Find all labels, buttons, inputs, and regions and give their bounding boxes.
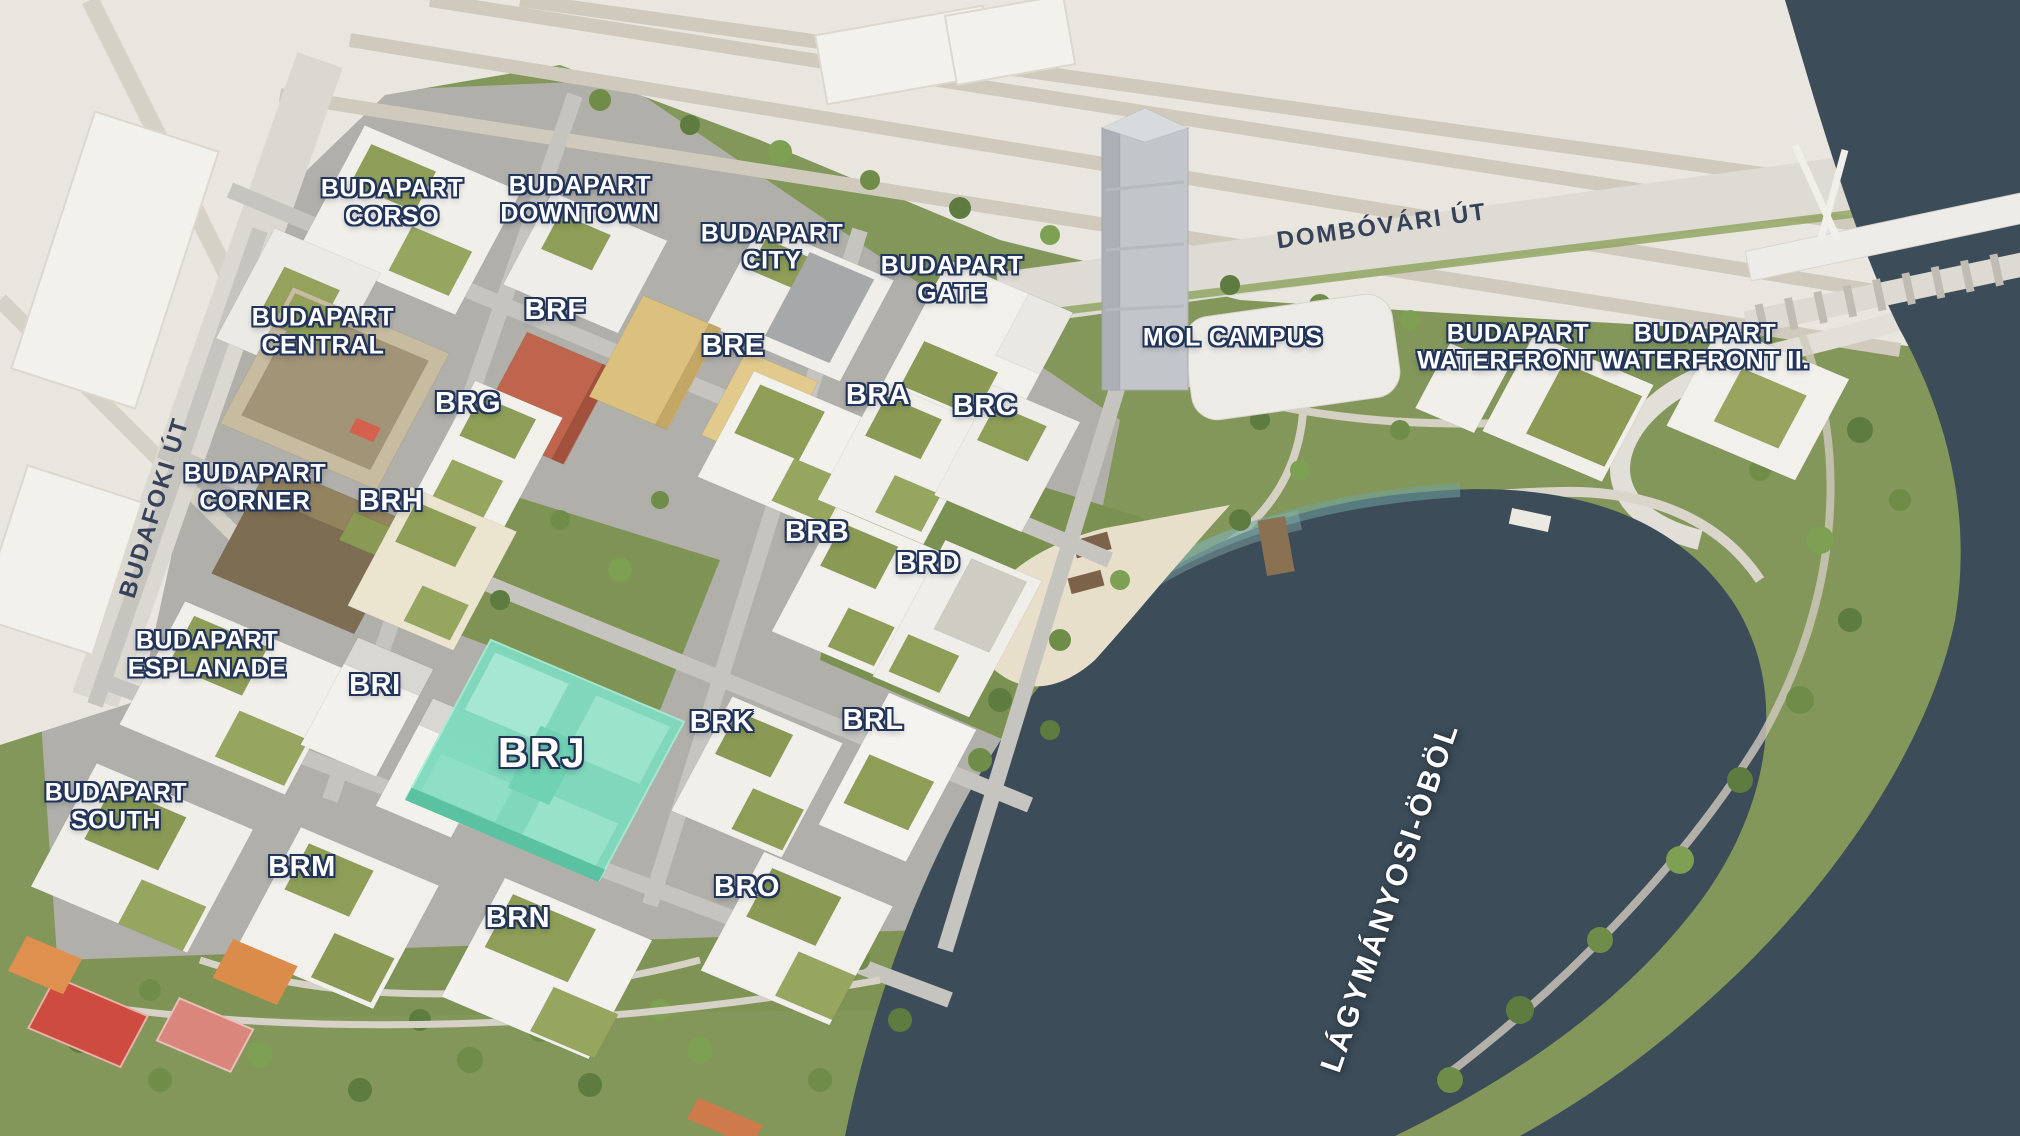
label-bri[interactable]: BRI — [349, 670, 400, 702]
label-budapart-waterfront-1[interactable]: BUDAPART WATERFRONT I. — [1417, 320, 1619, 375]
label-budapart-central[interactable]: BUDAPART CENTRAL — [252, 305, 394, 360]
label-brf[interactable]: BRF — [525, 295, 586, 327]
label-mol-campus[interactable]: MOL CAMPUS — [1143, 324, 1323, 352]
label-budapart-esplanade[interactable]: BUDAPART ESPLANADE — [128, 628, 287, 683]
label-brb[interactable]: BRB — [785, 517, 849, 549]
label-dombovari-ut: DOMBÓVÁRI ÚT — [1275, 199, 1489, 255]
label-budapart-downtown[interactable]: BUDAPART DOWNTOWN — [500, 173, 659, 228]
label-brj[interactable]: BRJ — [498, 730, 587, 776]
masterplan-map: BUDAPART CORSOBUDAPART DOWNTOWNBUDAPART … — [0, 0, 2020, 1136]
label-budapart-corso[interactable]: BUDAPART CORSO — [321, 176, 463, 231]
label-brn[interactable]: BRN — [486, 903, 550, 935]
label-brm[interactable]: BRM — [268, 852, 336, 884]
label-budapart-gate[interactable]: BUDAPART GATE — [881, 253, 1023, 308]
label-brc[interactable]: BRC — [953, 391, 1017, 423]
label-lagymanyosi-obol: LÁGYMÁNYOSI-ÖBÖL — [1314, 718, 1465, 1077]
label-brk[interactable]: BRK — [690, 707, 754, 739]
label-budapart-corner[interactable]: BUDAPART CORNER — [184, 461, 326, 516]
label-brg[interactable]: BRG — [435, 388, 501, 420]
label-brd[interactable]: BRD — [896, 548, 960, 580]
label-budapart-waterfront-2[interactable]: BUDAPART WATERFRONT II. — [1600, 320, 1809, 375]
label-bre[interactable]: BRE — [702, 331, 765, 363]
label-budapart-south[interactable]: BUDAPART SOUTH — [45, 780, 187, 835]
label-brl[interactable]: BRL — [842, 705, 903, 737]
label-budapart-city[interactable]: BUDAPART CITY — [701, 220, 843, 275]
label-brh[interactable]: BRH — [359, 486, 423, 518]
label-bra[interactable]: BRA — [846, 380, 910, 412]
map-labels: BUDAPART CORSOBUDAPART DOWNTOWNBUDAPART … — [0, 0, 2020, 1136]
label-bro[interactable]: BRO — [714, 872, 780, 904]
